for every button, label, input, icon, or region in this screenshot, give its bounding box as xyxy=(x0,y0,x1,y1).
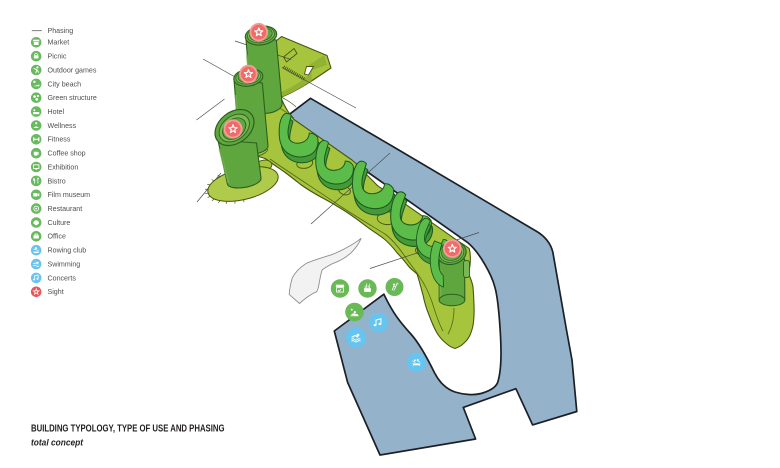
svg-text:City beach: City beach xyxy=(48,80,82,88)
svg-text:Bistro: Bistro xyxy=(48,177,66,185)
svg-text:Hotel: Hotel xyxy=(48,108,65,116)
svg-text:Wellness: Wellness xyxy=(48,122,77,130)
svg-text:Culture: Culture xyxy=(48,219,71,227)
svg-text:Coffee shop: Coffee shop xyxy=(48,150,86,158)
svg-text:Sight: Sight xyxy=(48,288,64,296)
svg-text:total concept: total concept xyxy=(31,438,84,449)
svg-text:Outdoor games: Outdoor games xyxy=(48,66,97,74)
svg-text:Swimming: Swimming xyxy=(48,261,81,269)
svg-text:Fitness: Fitness xyxy=(48,136,71,144)
svg-text:Green structure: Green structure xyxy=(48,94,97,102)
svg-text:Concerts: Concerts xyxy=(48,274,77,282)
svg-text:Restaurant: Restaurant xyxy=(48,205,83,213)
svg-text:Office: Office xyxy=(48,233,66,241)
svg-text:Market: Market xyxy=(48,39,70,47)
svg-text:Rowing club: Rowing club xyxy=(48,247,87,255)
svg-text:Phasing: Phasing xyxy=(48,27,74,35)
svg-text:Film museum: Film museum xyxy=(48,191,91,199)
svg-text:BUILDING TYPOLOGY, TYPE OF USE: BUILDING TYPOLOGY, TYPE OF USE AND PHASI… xyxy=(31,424,225,435)
svg-text:Picnic: Picnic xyxy=(48,53,67,61)
svg-text:Exhibition: Exhibition xyxy=(48,163,79,171)
